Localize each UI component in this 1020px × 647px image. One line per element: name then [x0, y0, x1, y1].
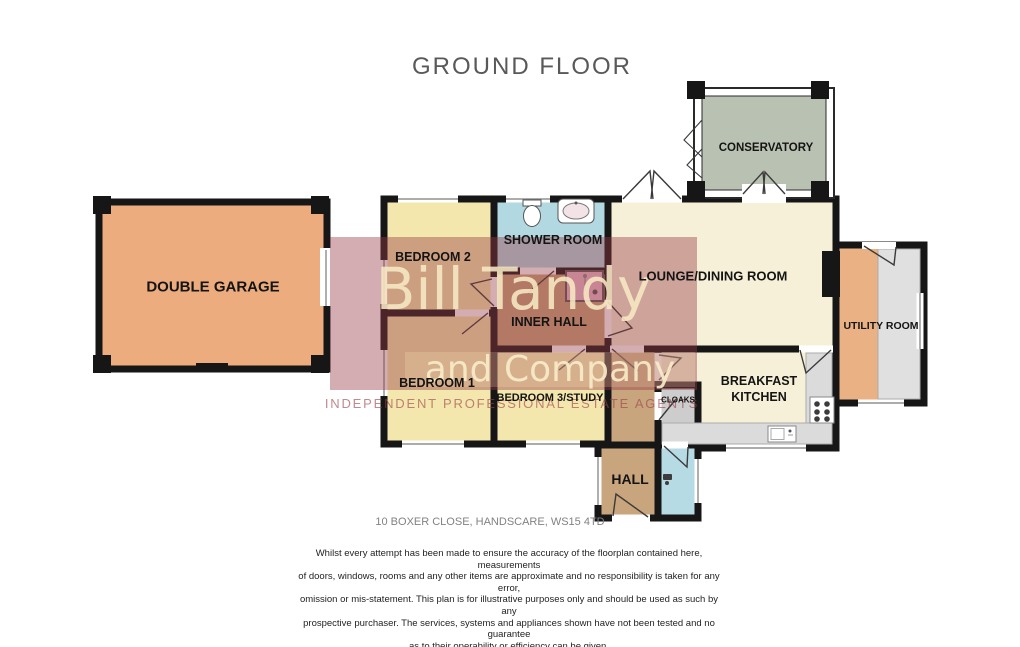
room-label-shower-room: SHOWER ROOM: [504, 233, 603, 247]
watermark-brand-name: Bill Tandy: [330, 257, 697, 321]
basin-icon: [558, 199, 594, 223]
room-label-hall: HALL: [611, 471, 648, 487]
room-label-inner-hall: INNER HALL: [511, 315, 587, 329]
room-wc: [658, 445, 698, 518]
room-label-bedroom1: BEDROOM 1: [399, 376, 475, 390]
disclaimer-text: Whilst every attempt has been made to en…: [294, 548, 724, 647]
room-label-bedroom2: BEDROOM 2: [395, 250, 471, 264]
room-label-utility-room: UTILITY ROOM: [843, 320, 918, 332]
room-label-cloaks: CLOAKS: [661, 396, 695, 405]
room-label-double-garage: DOUBLE GARAGE: [146, 279, 279, 296]
property-address: 10 BOXER CLOSE, HANDSCARE, WS15 4TD: [375, 516, 604, 528]
room-label-breakfast-kitchen: BREAKFAST KITCHEN: [704, 373, 814, 406]
disclaimer-block: Whilst every attempt has been made to en…: [294, 548, 724, 647]
chimney-breast: [822, 251, 840, 297]
kitchen-sink-icon: [768, 426, 796, 442]
room-label-conservatory: CONSERVATORY: [719, 142, 814, 154]
toilet-icon: [523, 200, 541, 227]
page-title: GROUND FLOOR: [412, 53, 632, 81]
conservatory-structure: [687, 81, 834, 199]
floorplan-page: Bill Tandy and Company INDEPENDENT PROFE…: [0, 0, 1020, 647]
room-label-bedroom3-study: BEDROOM 3/STUDY: [497, 392, 604, 404]
room-label-lounge-dining: LOUNGE/DINING ROOM: [639, 269, 788, 284]
